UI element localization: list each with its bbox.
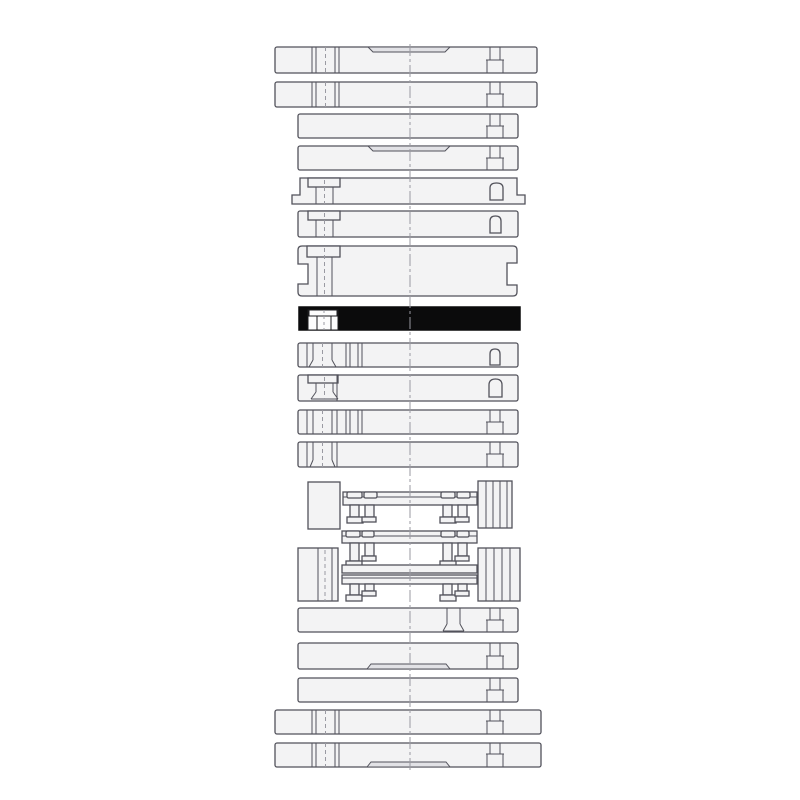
upper-backing-plate-b[interactable] [298,146,518,170]
die-plate-a[interactable] [298,410,518,434]
upper-shoulder-plate-b[interactable] [298,211,518,237]
lower-support-plate[interactable] [298,608,518,632]
bottom-clamp-plate-upper[interactable] [275,710,541,734]
page [0,0,800,800]
top-clamp-plate-upper[interactable] [275,47,537,73]
upper-die-holder-plate[interactable] [298,246,517,296]
top-clamp-plate-lower[interactable] [275,82,537,107]
lower-spacer-plate[interactable] [298,643,518,669]
ejector-rail-assembly-lower[interactable] [298,531,520,601]
stripper-plate-a[interactable] [298,343,518,367]
bottom-clamp-plate-lower[interactable] [275,743,541,767]
lower-backing-plate[interactable] [298,678,518,702]
stripper-plate-b[interactable] [298,375,518,401]
die-plate-b[interactable] [298,442,518,467]
mold-stack-diagram [0,0,800,800]
upper-backing-plate-a[interactable] [298,114,518,138]
upper-shoulder-plate-a[interactable] [292,178,525,204]
